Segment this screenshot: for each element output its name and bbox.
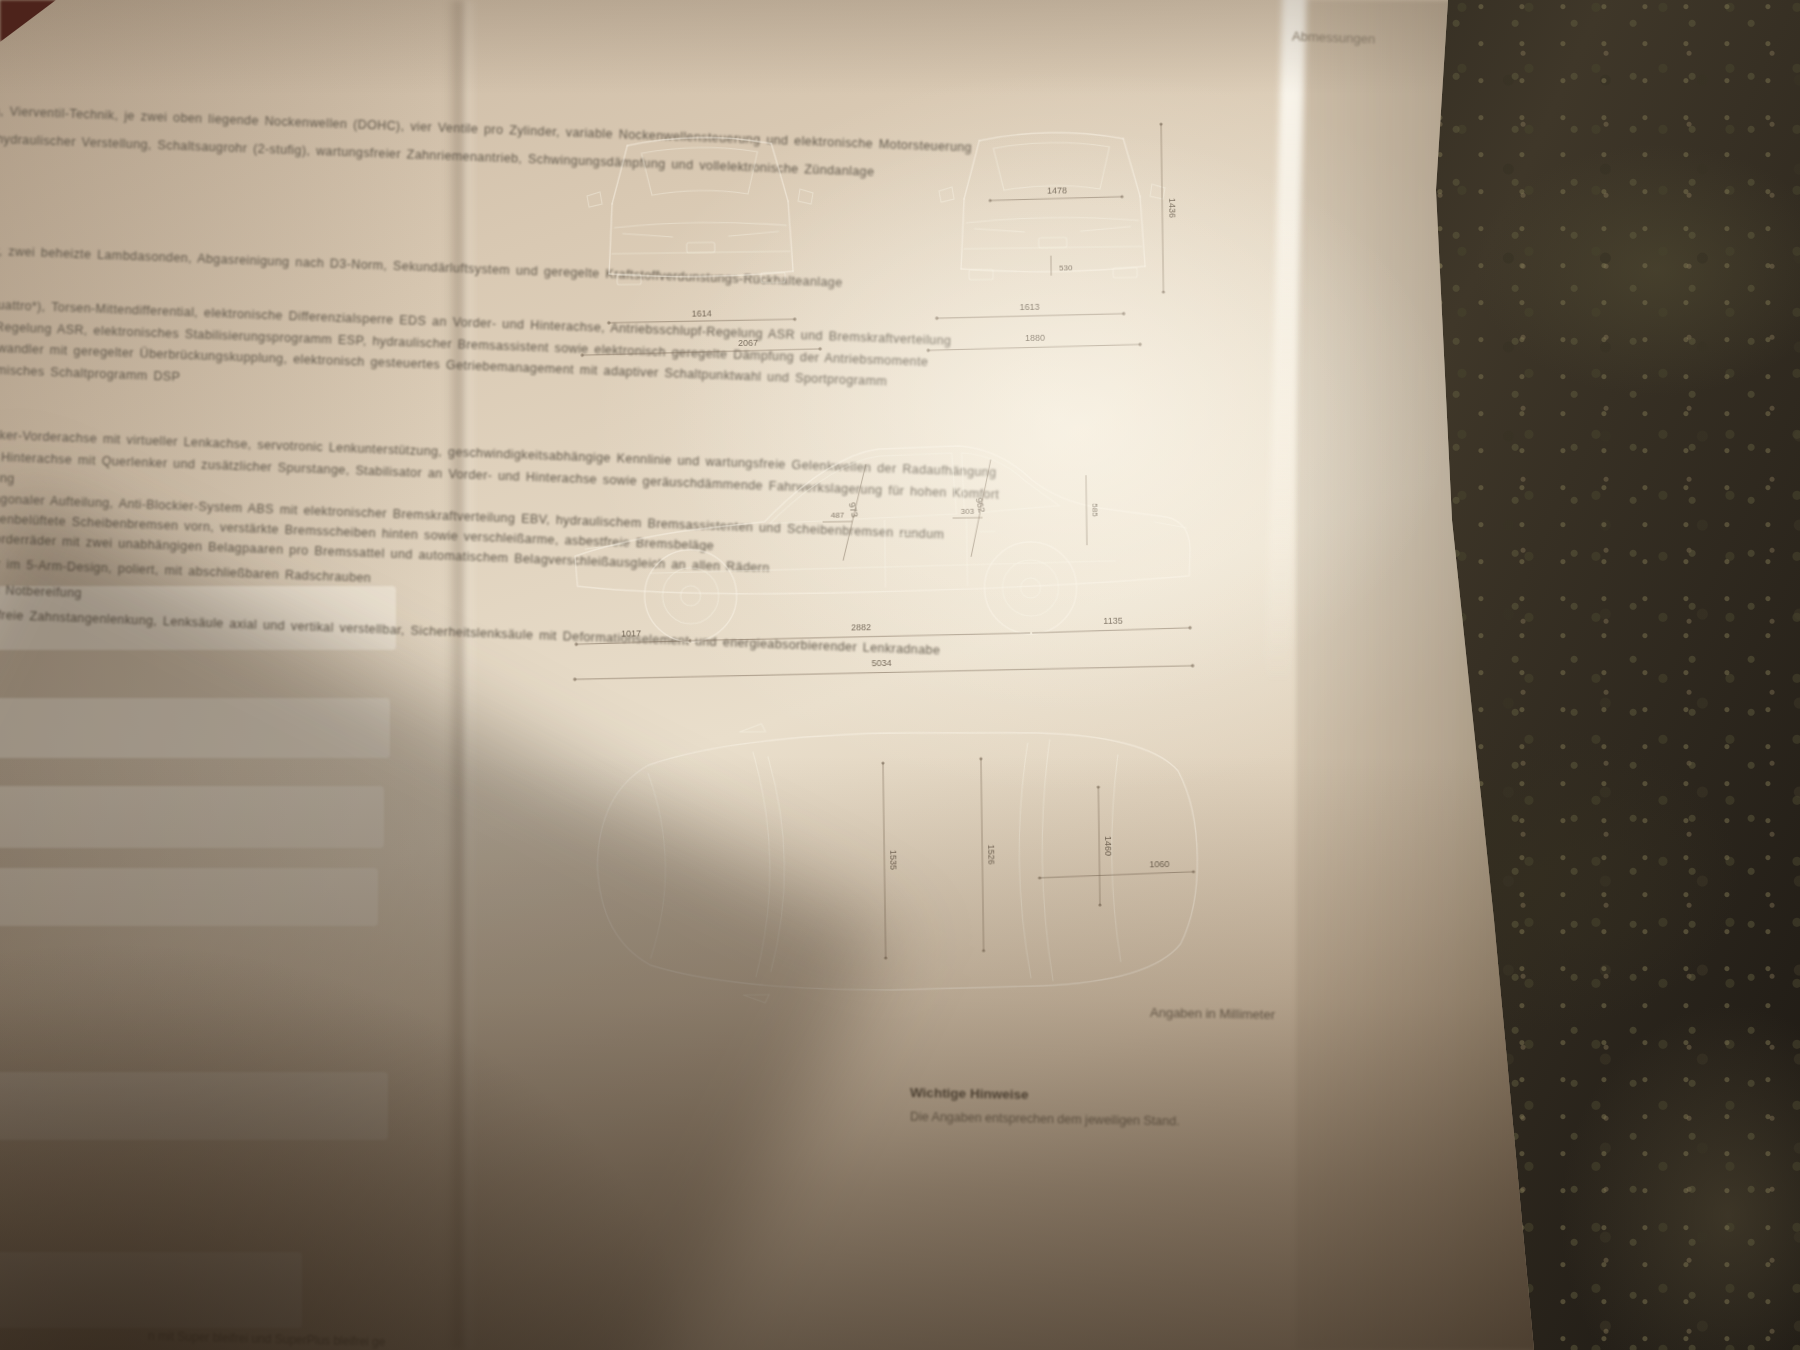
top-view-dimensions: 1535 1526 1460 1060 [881,754,1196,960]
dim-label: 1478 [1047,185,1067,195]
page-header-label: Abmessungen [1292,29,1376,47]
spec-row-band [0,1072,388,1140]
footer-line: Die Angaben entsprechen dem jeweiligen S… [910,1110,1180,1129]
dim-label: 1614 [692,308,712,318]
page-gutter-shade [0,0,470,1350]
footer-title: Wichtige Hinweise [910,1085,1029,1102]
dim-label: 585 [1090,503,1099,517]
photo-of-brochure-page: toren, Vierventil-Technik, je zwei oben … [0,0,1800,1350]
dim-label: 1880 [1025,333,1045,343]
dim-label: 1526 [986,844,996,864]
dim-label: 1017 [621,628,641,638]
dim-label: 1613 [1020,302,1040,312]
dimension-drawings: 1614 2067 1478 530 1436 1613 1880 [549,85,1222,1014]
front-view-drawing [586,136,814,285]
spec-row-band [0,786,384,848]
side-view-drawing [574,443,1192,644]
front-view-dimensions: 1614 2067 [580,307,822,357]
dim-label: 962 [974,497,987,514]
dim-label: 1535 [888,850,898,870]
dim-label: 530 [1059,263,1073,272]
dim-label: 1436 [1167,198,1177,218]
dim-label: 487 [831,511,845,520]
dim-label: 2882 [851,622,871,632]
dim-label: 1135 [1103,616,1122,626]
side-view-dimensions: 973 962 487 303 585 1017 2882 1135 5034 [570,457,1194,681]
spec-row-band [0,698,390,758]
dim-label: 973 [847,501,860,518]
spec-row-band [0,868,378,926]
dim-label: 1460 [1103,836,1113,856]
rear-view-drawing [938,131,1166,280]
spec-row-band [0,1252,302,1328]
dim-label: 1060 [1149,859,1169,869]
dim-label: 2067 [738,338,758,348]
dim-label: 303 [961,507,975,516]
dim-label: 5034 [871,658,891,668]
page-fold-crease [446,0,476,1350]
units-note: Angaben in Millimeter [1150,1005,1275,1022]
